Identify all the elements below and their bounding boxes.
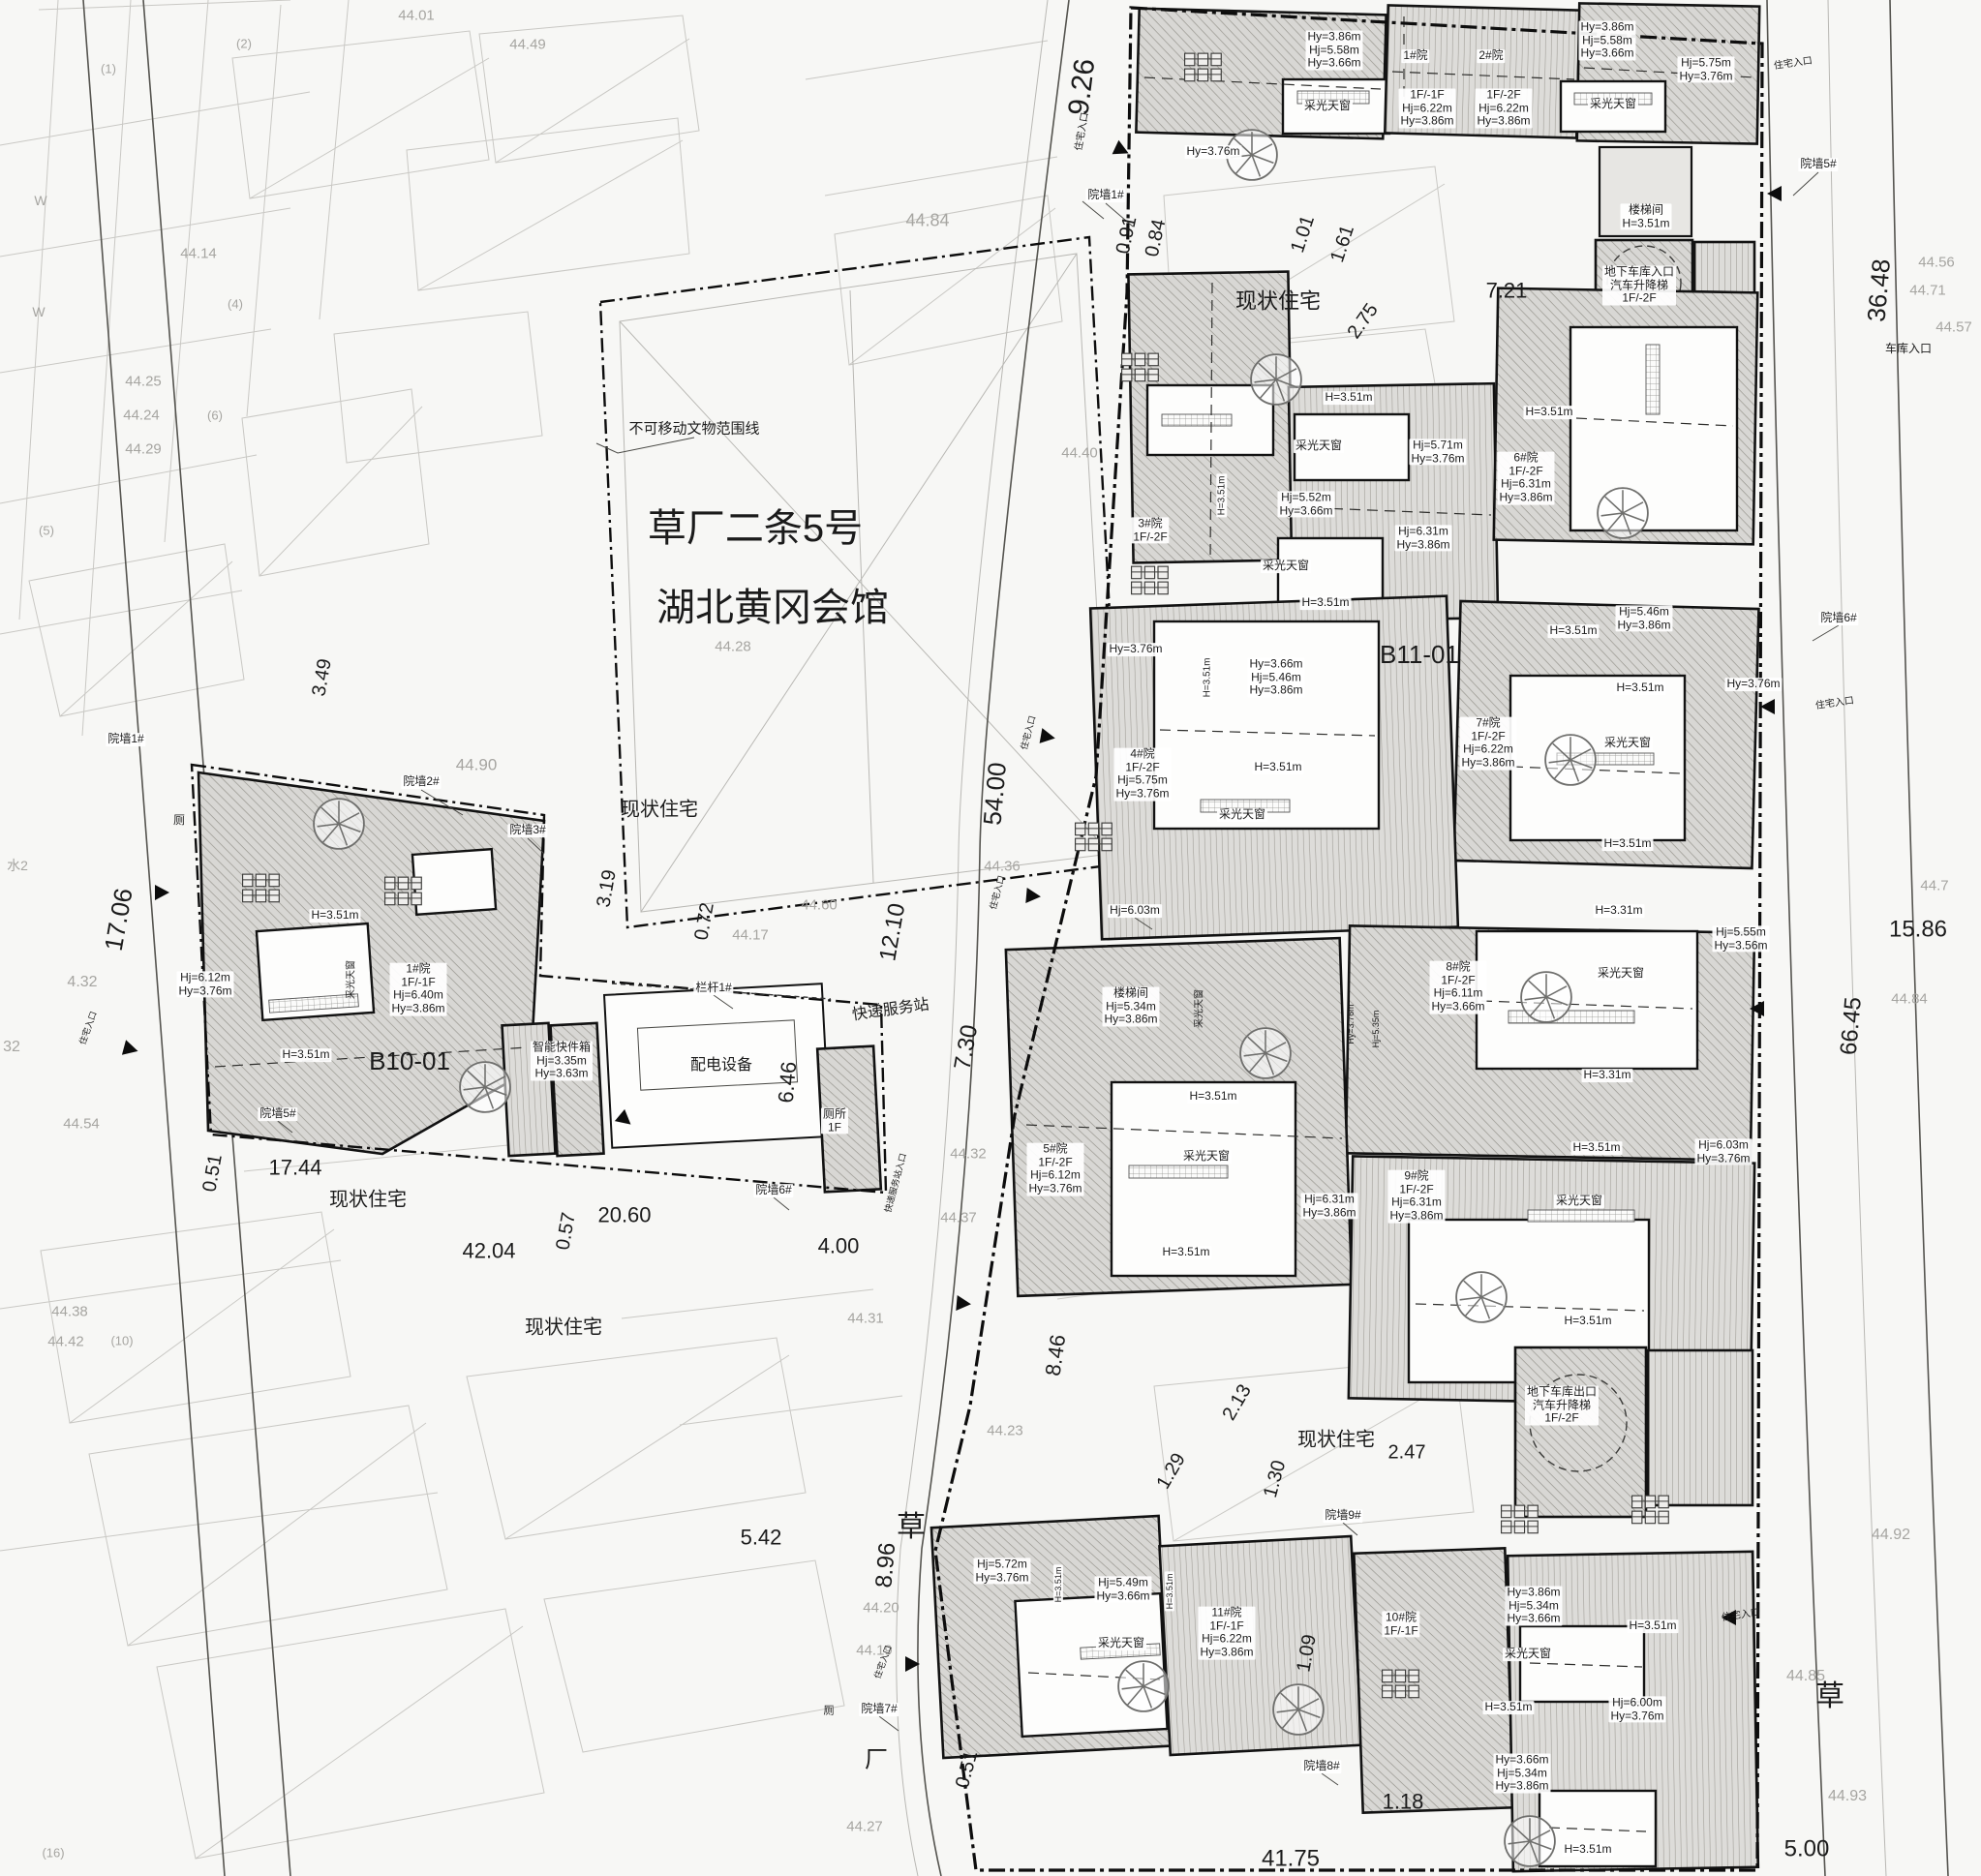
plan-label: 44.7 [1920, 877, 1948, 893]
plan-label: 住宅入口 [1019, 714, 1037, 750]
existing-residence-label: 现状住宅 [329, 1190, 407, 1212]
skylight-label: 采光天窗 [1181, 1150, 1232, 1164]
skylight-label: 采光天窗 [1261, 560, 1311, 573]
plan-label: Hj=6.00m Hy=3.76m [1608, 1696, 1665, 1722]
plan-label: 7.21 [1486, 278, 1528, 302]
plan-label: 8.96 [870, 1542, 900, 1589]
plan-label: H=3.51m [1482, 1701, 1534, 1714]
plan-label: Hy=3.66m Hj=5.34m Hy=3.86m [1493, 1753, 1550, 1793]
plan-label: 44.31 [847, 1310, 884, 1326]
plan-label: Hy=3.76m [1346, 1004, 1356, 1044]
plan-label: Hj=5.52m Hy=3.66m [1277, 491, 1334, 517]
plan-label: H=3.51m [1562, 1843, 1613, 1857]
plan-label: 0.91 [1112, 215, 1142, 257]
yard-wall-1-label: 院墙1# [1085, 189, 1125, 202]
skylight-label: 采光天窗 [346, 960, 356, 999]
plan-label: H=3.51m [1601, 837, 1653, 851]
plan-label: Hy=3.76m [1107, 643, 1164, 656]
skylight-label: 采光天窗 [1503, 1648, 1553, 1661]
plan-label: 44.20 [863, 1599, 899, 1616]
courtyard-8-label: 8#院 1F/-2F Hj=6.11m Hy=3.66m [1429, 961, 1486, 1014]
plan-label: 5.42 [741, 1525, 782, 1549]
toilet-label: 厕 [173, 814, 185, 828]
plan-label: 快递服务站入口 [883, 1152, 908, 1214]
plan-label: Hy=3.86m Hj=5.34m Hy=3.66m [1505, 1586, 1562, 1625]
plan-label: 院墙8# [1301, 1760, 1341, 1773]
dim-9-26: 9.26 [1062, 57, 1102, 117]
plan-label: H=3.51m [280, 1048, 331, 1062]
plan-label: 15.86 [1889, 916, 1947, 942]
skylight-label: 采光天窗 [1194, 989, 1204, 1028]
plan-label: Hj=6.31m Hy=3.86m [1394, 525, 1451, 551]
plan-label: Hy=3.76m [1184, 145, 1241, 159]
plan-label: 4.32 [67, 974, 97, 991]
plan-label: H=3.51m [1216, 474, 1227, 518]
plan-label: Hy=3.76m [1724, 678, 1782, 691]
plan-label: 1.61 [1326, 223, 1359, 265]
courtyard-3-label: 3#院 1F/-2F [1131, 517, 1169, 543]
plan-label: 院墙3# [507, 824, 547, 837]
plan-label: 院墙1# [106, 733, 145, 746]
plan-label: H=3.51m [1053, 1565, 1063, 1605]
street-name-char: 草 [897, 1511, 926, 1544]
plan-label: 院墙5# [1798, 158, 1838, 171]
plan-labels-layer: 9.26住宅入口Hy=3.86m Hj=5.58m Hy=3.66m1#院1F/… [0, 0, 1981, 1876]
plan-label: 1.18 [1383, 1789, 1424, 1813]
plan-label: 44.84 [905, 211, 949, 231]
courier-station-label: 快递服务站 [851, 996, 930, 1024]
plan-label: 44.57 [1935, 318, 1972, 335]
garage-entry-label: 地下车库入口 汽车升降梯 1F/-2F [1602, 265, 1676, 305]
plan-label: H=3.31m [1581, 1069, 1632, 1082]
toilet-label: 厕所 1F [821, 1107, 848, 1134]
plan-label: 1F/-2F Hj=6.22m Hy=3.86m [1475, 88, 1532, 128]
plan-label: 44.49 [509, 36, 546, 52]
plan-label: H=3.51m [1299, 596, 1351, 610]
courtyard-4-label: 4#院 1F/-2F Hj=5.75m Hy=3.76m [1113, 748, 1171, 802]
plan-label: Hj=5.49m Hy=3.66m [1094, 1576, 1151, 1602]
plan-label: 44.92 [1872, 1527, 1910, 1544]
plan-label: (1) [101, 63, 116, 77]
plan-label: W [32, 305, 45, 320]
plan-label: 17.44 [268, 1155, 321, 1179]
plan-label: 36.48 [1862, 257, 1896, 322]
plan-label: Hj=5.35m [1371, 1011, 1381, 1048]
plan-label: 0.51 [198, 1153, 227, 1194]
existing-residence-label: 现状住宅 [621, 800, 698, 822]
plan-label: Hy=3.86m Hj=5.58m Hy=3.66m [1305, 30, 1362, 70]
courtyard-9-label: 9#院 1F/-2F Hj=6.31m Hy=3.86m [1387, 1170, 1445, 1224]
plan-label: 1.29 [1152, 1449, 1190, 1493]
plan-label: 44.24 [123, 407, 160, 423]
plan-label: 12.10 [874, 901, 910, 963]
plan-label: 1.09 [1293, 1633, 1321, 1674]
plan-label: (5) [39, 525, 54, 539]
plan-label: 住宅入口 [1773, 56, 1813, 73]
plan-label: Hj=6.31m Hy=3.86m [1300, 1193, 1357, 1219]
plan-label: 44.38 [51, 1303, 88, 1319]
plan-label: 54.00 [978, 761, 1012, 826]
plan-label: 17.06 [100, 886, 138, 953]
plan-label: 44.17 [732, 926, 769, 943]
plan-label: H=3.51m [1614, 681, 1665, 695]
plan-label: 44.60 [801, 896, 838, 913]
plan-label: 0.84 [1142, 218, 1171, 259]
toilet-label: 厕 [824, 1706, 835, 1718]
existing-residence-label: 现状住宅 [1235, 288, 1321, 313]
plan-label: Hj=5.55m Hy=3.56m [1712, 925, 1769, 952]
courtyard-10-label: 10#院 1F/-1F [1382, 1611, 1419, 1637]
plan-label: 66.45 [1836, 996, 1867, 1056]
plan-label: 住宅入口 [77, 1010, 99, 1045]
plan-label: 住宅入口 [1814, 696, 1854, 712]
plan-label: 水2 [7, 859, 28, 874]
plan-label: 3.49 [308, 657, 336, 698]
existing-residence-label: 现状住宅 [1297, 1430, 1375, 1452]
site-name-line2: 湖北黄冈会馆 [656, 587, 889, 631]
plan-label: 0.57 [552, 1211, 580, 1252]
plan-label: 44.93 [1828, 1788, 1867, 1805]
plan-label: Hy=3.86m Hj=5.58m Hy=3.66m [1578, 20, 1635, 60]
plan-label: 44.32 [950, 1145, 987, 1162]
b10-courtyard-1-label: 1#院 1F/-1F Hj=6.40m Hy=3.86m [389, 963, 446, 1016]
plan-label: (10) [110, 1335, 133, 1349]
plan-label: Hj=5.72m Hy=3.76m [973, 1558, 1030, 1584]
plan-label: 2.75 [1343, 300, 1383, 344]
plan-label: 院墙5# [258, 1107, 297, 1121]
plan-label: H=3.51m [1165, 1572, 1174, 1612]
plan-label: Hj=6.12m Hy=3.76m [176, 971, 233, 997]
site-plan-drawing: 9.26住宅入口Hy=3.86m Hj=5.58m Hy=3.66m1#院1F/… [0, 0, 1981, 1876]
plan-label: H=3.51m [1523, 406, 1574, 419]
plan-label: 44.84 [1891, 990, 1928, 1007]
plan-label: 44.85 [1786, 1668, 1825, 1685]
plan-label: 44.90 [456, 755, 498, 773]
plan-label: H=3.51m [1547, 624, 1599, 638]
plan-label: 1F/-1F Hj=6.22m Hy=3.86m [1398, 88, 1455, 128]
plan-label: H=3.51m [1562, 1315, 1613, 1328]
street-name-char: 厂 [865, 1746, 888, 1772]
plan-label: 住宅入口 [988, 874, 1006, 910]
plan-label: 3.19 [593, 868, 621, 909]
skylight-label: 采光天窗 [1588, 98, 1638, 111]
plan-label: Hj=5.75m Hy=3.76m [1677, 56, 1734, 82]
plan-label: 41.75 [1262, 1845, 1320, 1871]
residence-entrance-label: 住宅入口 [1074, 111, 1091, 151]
plan-label: H=3.51m [1160, 1246, 1211, 1259]
site-name-line1: 草厂二条5号 [648, 507, 863, 552]
plan-label: H=3.51m [1570, 1141, 1622, 1155]
plan-label: 42.04 [462, 1238, 515, 1262]
plan-label: (4) [228, 298, 243, 313]
railing-1-label: 栏杆1# [693, 982, 733, 995]
plan-label: H=3.51m [1627, 1619, 1678, 1633]
plan-label: 20.60 [597, 1202, 651, 1226]
plan-label: 2.13 [1218, 1380, 1256, 1424]
stair-label: 楼梯间 Hj=5.34m Hy=3.86m [1102, 986, 1159, 1026]
plan-label: 32 [3, 1039, 20, 1056]
plan-label: 44.42 [47, 1333, 84, 1349]
courtyard-11-label: 11#院 1F/-1F Hj=6.22m Hy=3.86m [1198, 1607, 1255, 1660]
plan-label: 2.47 [1388, 1442, 1426, 1465]
plan-label: 44.36 [984, 858, 1021, 874]
garage-exit-label: 地下车库出口 汽车升降梯 1F/-2F [1525, 1385, 1599, 1425]
plan-label: H=3.51m [1323, 391, 1374, 405]
plan-label: 44.28 [715, 638, 751, 654]
skylight-label: 采光天窗 [1602, 737, 1653, 750]
plan-label: W [34, 194, 46, 209]
plan-label: 44.27 [846, 1818, 883, 1834]
plan-label: 44.54 [63, 1115, 100, 1132]
skylight-label: 采光天窗 [1217, 808, 1267, 822]
parcel-locker-label: 智能快件箱 Hj=3.35m Hy=3.63m [531, 1041, 593, 1080]
courtyard-1-label: 1#院 [1401, 49, 1429, 63]
plan-label: 院墙9# [1323, 1509, 1362, 1523]
skylight-label: 采光天窗 [1294, 439, 1344, 453]
plan-label: 住宅入口 [1721, 1608, 1760, 1624]
plan-label: 4.00 [818, 1233, 860, 1257]
plan-label: 44.37 [940, 1209, 977, 1225]
plan-label: 8.46 [1041, 1333, 1071, 1377]
plan-label: 7.30 [949, 1023, 983, 1073]
plan-label: 1.30 [1260, 1458, 1291, 1500]
plan-label: 院墙2# [401, 775, 441, 789]
plan-label: 院墙6# [753, 1184, 793, 1197]
stair-label: 楼梯间 H=3.51m [1620, 203, 1671, 229]
block-id-b10-01: B10-01 [369, 1047, 450, 1076]
plan-label: H=3.51m [309, 909, 360, 923]
plan-label: H=3.31m [1593, 904, 1644, 918]
courtyard-2-label: 2#院 [1477, 49, 1505, 63]
plan-label: 1.01 [1287, 213, 1320, 256]
plan-label: Hy=3.66m Hj=5.46m Hy=3.86m [1247, 657, 1304, 697]
plan-label: 44.01 [398, 7, 435, 23]
plan-label: H=3.51m [1202, 656, 1212, 700]
skylight-label: 采光天窗 [1096, 1637, 1146, 1650]
plan-label: H=3.51m [1252, 761, 1303, 774]
plan-label: 44.23 [987, 1422, 1023, 1438]
skylight-label: 采光天窗 [1302, 100, 1353, 113]
plan-label: H=3.51m [1187, 1090, 1238, 1104]
garage-entrance-label: 车库入口 [1885, 343, 1932, 356]
plan-label: 44.14 [180, 245, 217, 261]
plan-label: (16) [42, 1847, 64, 1861]
plan-label: Hj=5.46m Hy=3.86m [1615, 605, 1672, 631]
courtyard-5-label: 5#院 1F/-2F Hj=6.12m Hy=3.76m [1026, 1143, 1083, 1196]
plan-label: Hj=6.03m Hy=3.76m [1694, 1138, 1752, 1165]
power-equipment-label: 配电设备 [690, 1057, 752, 1074]
plan-label: 44.29 [125, 440, 162, 457]
existing-residence-label: 现状住宅 [525, 1317, 602, 1340]
plan-label: 0.51 [952, 1748, 983, 1791]
plan-label: 院墙7# [859, 1703, 899, 1716]
plan-label: 44.56 [1918, 254, 1955, 270]
plan-label: 院墙6# [1818, 612, 1858, 625]
plan-label: 6.46 [774, 1061, 802, 1104]
plan-label: Hj=6.03m [1108, 904, 1162, 918]
heritage-boundary-label: 不可移动文物范围线 [628, 420, 759, 437]
plan-label: 5.00 [1784, 1835, 1830, 1861]
plan-label: (2) [236, 38, 252, 52]
courtyard-7-label: 7#院 1F/-2F Hj=6.22m Hy=3.86m [1459, 717, 1516, 771]
courtyard-6-label: 6#院 1F/-2F Hj=6.31m Hy=3.86m [1497, 452, 1554, 505]
plan-label: (6) [207, 409, 223, 424]
plan-label: Hj=5.71m Hy=3.76m [1409, 439, 1466, 465]
skylight-label: 采光天窗 [1596, 967, 1646, 981]
plan-label: 44.40 [1061, 444, 1098, 461]
plan-label: 44.71 [1909, 282, 1946, 298]
block-id-b11-01: B11-01 [1380, 641, 1459, 670]
plan-label: 44.25 [125, 373, 162, 389]
skylight-label: 采光天窗 [1554, 1195, 1604, 1208]
plan-label: 0.72 [690, 901, 718, 942]
